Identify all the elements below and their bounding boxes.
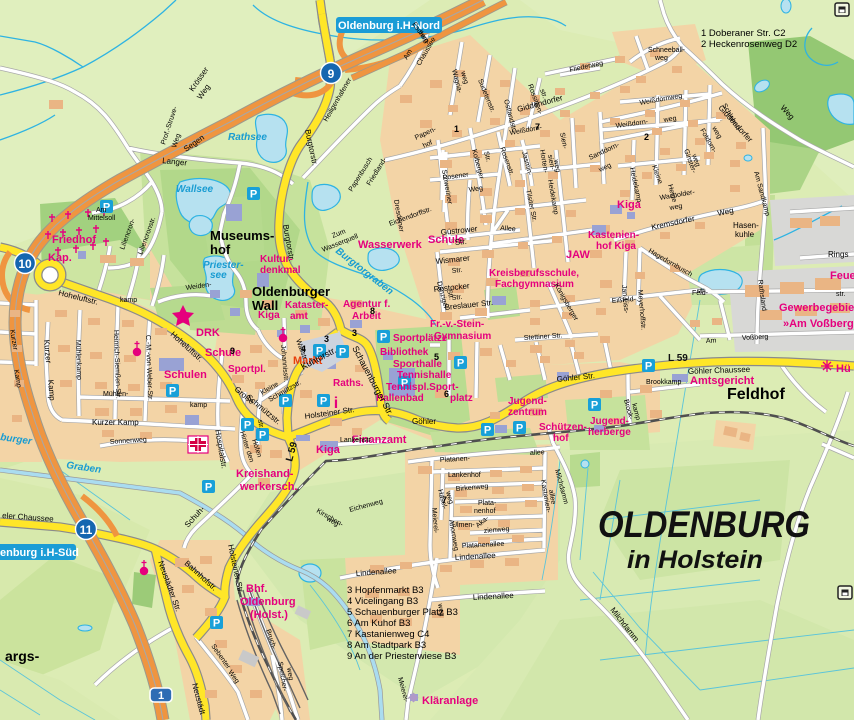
svg-text:5: 5 xyxy=(434,352,439,362)
svg-text:P: P xyxy=(320,396,327,408)
svg-text:werkersch.: werkersch. xyxy=(239,481,297,493)
svg-text:Schützen-: Schützen- xyxy=(539,422,587,433)
svg-text:enburg i.H-Süd: enburg i.H-Süd xyxy=(0,547,79,559)
svg-text:allee: allee xyxy=(530,449,545,457)
svg-text:P: P xyxy=(250,189,257,201)
svg-text:Fr.-v.-Stein-: Fr.-v.-Stein- xyxy=(430,319,484,330)
svg-text:platz: platz xyxy=(450,393,473,404)
svg-text:OLDENBURG: OLDENBURG xyxy=(598,504,810,545)
svg-text:amt: amt xyxy=(290,311,308,322)
svg-text:4: 4 xyxy=(301,344,306,354)
svg-text:2: 2 xyxy=(644,132,649,142)
svg-text:P: P xyxy=(213,618,220,630)
svg-text:»Am Voßberg«: »Am Voßberg« xyxy=(783,318,854,330)
svg-text:Jugend-: Jugend- xyxy=(508,396,547,407)
svg-text:nenhof: nenhof xyxy=(474,508,495,515)
svg-text:Schule: Schule xyxy=(205,347,241,359)
svg-text:1 Doberaner Str. C2: 1 Doberaner Str. C2 xyxy=(701,28,786,39)
svg-text:L 59: L 59 xyxy=(668,353,688,364)
svg-text:Kiga: Kiga xyxy=(316,444,341,456)
svg-text:Am: Am xyxy=(96,207,107,214)
svg-text:P: P xyxy=(380,332,387,344)
svg-text:Hasen-: Hasen- xyxy=(733,221,759,230)
svg-text:P: P xyxy=(484,425,491,437)
svg-text:Sportplätze: Sportplätze xyxy=(393,333,448,344)
svg-text:8 Am Stadtpark B3: 8 Am Stadtpark B3 xyxy=(347,640,426,651)
svg-text:Schulen: Schulen xyxy=(164,369,207,381)
svg-text:Mühlenkamp: Mühlenkamp xyxy=(74,340,82,380)
svg-text:Kamp: Kamp xyxy=(46,379,57,401)
svg-text:Kap.: Kap. xyxy=(48,252,72,264)
svg-text:Oldenburg i.H-Nord: Oldenburg i.H-Nord xyxy=(338,20,440,32)
svg-text:hof: hof xyxy=(210,242,231,257)
svg-text:hof: hof xyxy=(553,433,569,444)
svg-text:3: 3 xyxy=(324,334,329,344)
svg-text:Tennishalle: Tennishalle xyxy=(397,370,452,381)
svg-text:Feld-: Feld- xyxy=(692,290,709,297)
svg-text:Str.: Str. xyxy=(454,237,467,247)
svg-text:(Holst.): (Holst.) xyxy=(250,609,288,621)
svg-text:Raths.: Raths. xyxy=(333,378,364,389)
svg-text:P: P xyxy=(339,347,346,359)
svg-text:zentrum: zentrum xyxy=(508,407,547,418)
svg-text:Lankenstr.: Lankenstr. xyxy=(340,437,372,444)
svg-text:P: P xyxy=(645,361,652,373)
svg-text:weg: weg xyxy=(654,55,668,62)
svg-text:DRK: DRK xyxy=(196,327,220,339)
svg-text:7: 7 xyxy=(442,495,447,505)
svg-text:P: P xyxy=(516,423,523,435)
svg-text:see: see xyxy=(210,270,227,281)
svg-text:Schneeball-: Schneeball- xyxy=(648,47,686,54)
svg-text:Kataster-: Kataster- xyxy=(285,300,328,311)
svg-text:4 Vicelingang B3: 4 Vicelingang B3 xyxy=(347,596,418,607)
svg-text:kamp: kamp xyxy=(190,402,207,409)
svg-text:1: 1 xyxy=(454,124,459,134)
svg-text:2 Heckenrosenweg D2: 2 Heckenrosenweg D2 xyxy=(701,39,797,50)
svg-text:hof Kiga: hof Kiga xyxy=(596,241,636,252)
svg-text:Mittelsoll: Mittelsoll xyxy=(88,215,116,222)
svg-text:Jugend-: Jugend- xyxy=(590,416,629,427)
svg-text:10: 10 xyxy=(18,257,32,271)
svg-text:Mühlen-: Mühlen- xyxy=(103,391,129,398)
svg-text:3: 3 xyxy=(352,328,357,338)
svg-text:Allee: Allee xyxy=(500,225,516,233)
svg-text:Rings: Rings xyxy=(828,250,848,259)
svg-text:Wall: Wall xyxy=(252,298,278,313)
svg-text:Feldhof: Feldhof xyxy=(727,386,785,403)
svg-text:P: P xyxy=(457,358,464,370)
svg-text:Kreisberufsschule,: Kreisberufsschule, xyxy=(489,268,579,279)
svg-text:Lankenhof: Lankenhof xyxy=(448,472,481,479)
svg-text:Kastenien-: Kastenien- xyxy=(588,230,639,241)
svg-text:Plata-: Plata- xyxy=(478,500,497,507)
svg-text:Museums-: Museums- xyxy=(210,228,274,243)
svg-text:Brookkamp: Brookkamp xyxy=(646,379,682,386)
svg-text:Hü: Hü xyxy=(836,363,851,375)
svg-text:6 Am Kuhof B3: 6 Am Kuhof B3 xyxy=(347,618,410,629)
svg-text:Bibliothek: Bibliothek xyxy=(380,347,429,358)
svg-text:11: 11 xyxy=(80,523,93,537)
svg-text:8: 8 xyxy=(370,306,375,316)
svg-text:3 Hopfenmarkt B3: 3 Hopfenmarkt B3 xyxy=(347,585,424,596)
svg-text:in Holstein: in Holstein xyxy=(627,546,763,574)
svg-text:Gewerbegebiet: Gewerbegebiet xyxy=(779,302,854,314)
svg-text:P: P xyxy=(169,386,176,398)
svg-text:str.: str. xyxy=(836,291,845,298)
svg-text:denkmal: denkmal xyxy=(260,265,301,276)
svg-text:P: P xyxy=(282,396,289,408)
svg-text:P: P xyxy=(259,430,266,442)
svg-text:Friedhof: Friedhof xyxy=(52,234,96,246)
svg-text:Bhf.: Bhf. xyxy=(246,583,267,595)
svg-text:Oldenburger: Oldenburger xyxy=(252,284,330,299)
svg-text:Arbeit: Arbeit xyxy=(352,311,382,322)
svg-text:Voßberg: Voßberg xyxy=(742,334,769,342)
svg-text:kamp: kamp xyxy=(120,297,137,304)
svg-text:Sportpl.: Sportpl. xyxy=(228,364,266,375)
svg-text:6: 6 xyxy=(444,389,449,399)
svg-text:Kläranlage: Kläranlage xyxy=(422,695,478,707)
svg-text:Wallsee: Wallsee xyxy=(176,184,213,195)
svg-text:1: 1 xyxy=(158,690,164,702)
svg-text:JAW: JAW xyxy=(566,249,590,261)
svg-text:9: 9 xyxy=(328,67,335,81)
svg-text:Feue: Feue xyxy=(830,270,854,282)
svg-text:P: P xyxy=(205,482,212,494)
svg-text:7 Kastanienweg C4: 7 Kastanienweg C4 xyxy=(347,629,429,640)
svg-text:herberge: herberge xyxy=(588,427,631,438)
svg-text:args-: args- xyxy=(5,648,40,664)
svg-text:7: 7 xyxy=(535,122,540,132)
svg-text:Göhler: Göhler xyxy=(412,417,436,426)
svg-text:Kreishand-: Kreishand- xyxy=(236,468,294,480)
svg-text:Agentur f.: Agentur f. xyxy=(343,299,390,310)
svg-text:Kurzer Kamp: Kurzer Kamp xyxy=(92,418,139,427)
svg-text:Am: Am xyxy=(706,337,717,345)
svg-text:Rathsee: Rathsee xyxy=(228,132,267,143)
svg-text:Wasserwerk: Wasserwerk xyxy=(358,239,423,251)
svg-text:kuhle: kuhle xyxy=(735,230,755,239)
svg-text:Str.: Str. xyxy=(451,267,462,275)
svg-text:P: P xyxy=(591,400,598,412)
svg-text:9: 9 xyxy=(230,346,235,356)
svg-text:9 An der Priesterwiese B3: 9 An der Priesterwiese B3 xyxy=(347,651,456,662)
svg-text:Oldenburg: Oldenburg xyxy=(240,596,296,608)
